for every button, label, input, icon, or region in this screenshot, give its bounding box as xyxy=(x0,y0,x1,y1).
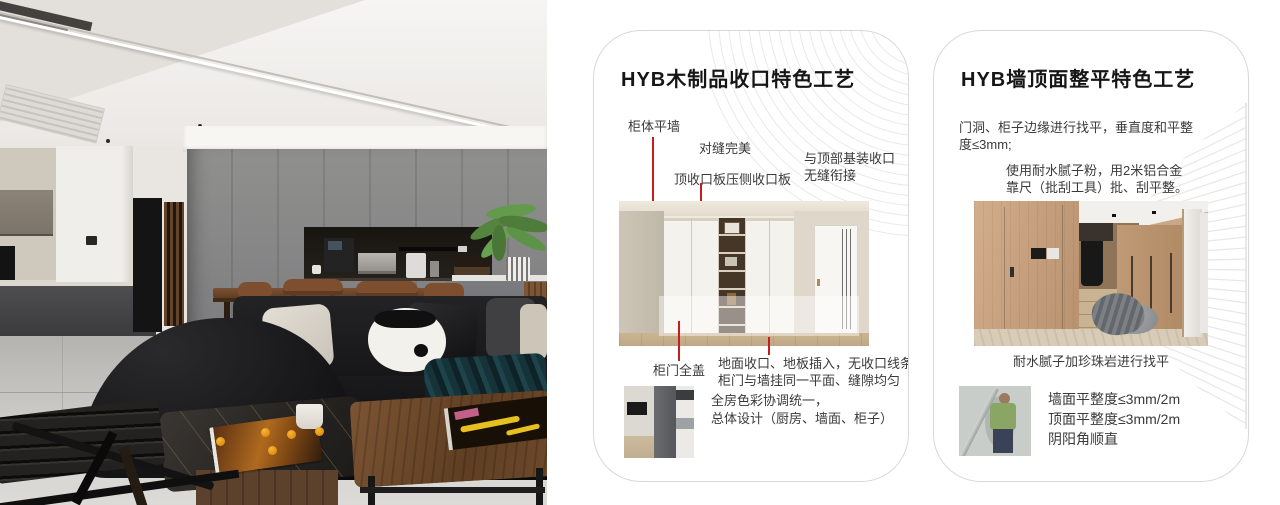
wardrobe-groove xyxy=(1170,253,1172,313)
interior-thumbnail xyxy=(624,386,694,458)
render-left-wall xyxy=(619,211,664,336)
shelf-object xyxy=(725,257,737,266)
thumb-floor xyxy=(624,436,654,458)
machine-screen xyxy=(328,241,342,250)
door-handle xyxy=(817,279,820,286)
magazine-title-script xyxy=(506,423,540,436)
callout-perfect-seam: 对缝完美 xyxy=(699,140,751,157)
hanging-clothes xyxy=(1081,241,1103,286)
spec-ceiling-flatness: 顶面平整度≤3mm/2m xyxy=(1048,409,1180,429)
espresso-machine xyxy=(406,253,426,278)
kumquat xyxy=(216,437,225,446)
paragraph-leveling-1a: 门洞、柜子边缘进行找平，垂直度和平整 xyxy=(959,119,1193,136)
pillow-beige xyxy=(520,304,547,360)
wood-slat-door xyxy=(164,202,184,326)
wardrobe-render-image xyxy=(619,201,869,346)
thumb-gray-column xyxy=(654,386,676,458)
thumb-tv xyxy=(627,402,647,415)
dining-chair xyxy=(238,282,272,296)
worker-thumbnail xyxy=(959,386,1031,456)
closet-left-wall xyxy=(974,201,1079,341)
closet-floor xyxy=(974,329,1208,346)
door-handle xyxy=(1010,267,1014,277)
kitchen-upper-cabinet xyxy=(0,190,53,236)
leader-line-floor-joint xyxy=(768,337,770,355)
hanging-rod xyxy=(399,247,457,251)
potted-plant xyxy=(468,203,547,281)
note-overall-design: 总体设计（厨房、墙面、柜子） xyxy=(711,410,893,427)
hidden-door-seam xyxy=(1004,207,1005,339)
living-room-photo xyxy=(0,0,547,505)
grinder xyxy=(430,261,439,277)
socket xyxy=(458,246,467,252)
spec-corners: 阴阳角顺直 xyxy=(1048,429,1118,449)
leaf xyxy=(492,225,506,261)
control-panel-module xyxy=(1047,248,1059,259)
paragraph-putty-2a: 使用耐水腻子粉，用2米铝合金 xyxy=(1006,162,1182,179)
callout-floor-1: 地面收口、地板插入，无收口线条 xyxy=(718,355,909,372)
kumquat xyxy=(287,430,296,439)
render-glow xyxy=(659,296,859,336)
shelf-object xyxy=(724,222,740,234)
dark-doorway xyxy=(133,198,162,332)
bright-room-glimpse xyxy=(1200,213,1208,333)
worker-shirt xyxy=(990,403,1016,430)
thumb-kitchen-counter xyxy=(676,418,694,429)
kumquat xyxy=(315,427,324,436)
callout-floor-2: 柜门与墙挂同一平面、缝隙均匀 xyxy=(718,372,900,389)
panda-black-band xyxy=(374,310,436,328)
ceiling-spot xyxy=(1152,211,1156,214)
wall-pillar xyxy=(56,146,133,282)
wood-table-bar xyxy=(360,487,545,493)
kumquat xyxy=(261,428,270,437)
callout-top-joint-1: 与顶部基装收口 xyxy=(804,150,895,167)
thumb-kitchen-cabinet xyxy=(676,390,694,400)
downlight-dot xyxy=(106,139,110,143)
panda-black-spot xyxy=(414,344,428,357)
paragraph-leveling-1b: 度≤3mm; xyxy=(959,136,1012,153)
hidden-door-seam xyxy=(1062,205,1063,339)
photo-caption: 耐水腻子加珍珠岩进行找平 xyxy=(974,353,1208,370)
page: HYB木制品收口特色工艺 柜体平墙 对缝完美 顶收口板压侧收口板 与顶部基装收口… xyxy=(0,0,1280,505)
card-title: HYB木制品收口特色工艺 xyxy=(621,63,855,92)
magazine-pink-mark xyxy=(454,408,479,420)
callout-top-joint-2: 无缝衔接 xyxy=(804,167,856,184)
paragraph-putty-2b: 靠尺（批刮工具）批、刮平整。 xyxy=(1006,179,1188,196)
recess-top-shelf xyxy=(1079,223,1113,241)
worker-pants xyxy=(993,429,1013,453)
control-panel xyxy=(1031,248,1046,259)
card-wood-closing-craft: HYB木制品收口特色工艺 柜体平墙 对缝完美 顶收口板压侧收口板 与顶部基装收口… xyxy=(593,30,909,482)
kumquat xyxy=(268,446,277,455)
dining-chair xyxy=(283,279,343,295)
coffee-niche xyxy=(304,227,492,281)
leader-line-door-cover xyxy=(678,321,680,361)
coffee-cup xyxy=(296,404,323,429)
mug xyxy=(312,265,321,274)
plant-pot xyxy=(506,257,530,281)
note-color-unity: 全房色彩协调统一， xyxy=(711,392,828,409)
callout-top-board: 顶收口板压侧收口板 xyxy=(674,171,791,188)
closet-photo xyxy=(974,201,1208,346)
dining-chair xyxy=(356,281,418,297)
callout-cabinet-flush-wall: 柜体平墙 xyxy=(628,118,680,135)
wardrobe-groove xyxy=(1150,256,1152,314)
cup-rack xyxy=(358,253,396,274)
light-switch xyxy=(86,236,97,245)
card-wall-leveling-craft: HYB墙顶面整平特色工艺 门洞、柜子边缘进行找平，垂直度和平整 度≤3mm; 使… xyxy=(933,30,1249,482)
open-white-door xyxy=(1182,209,1202,337)
ceiling-spot xyxy=(1112,214,1116,217)
card-title: HYB墙顶面整平特色工艺 xyxy=(961,63,1195,92)
callout-door-cover: 柜门全盖 xyxy=(653,362,705,379)
spec-wall-flatness: 墙面平整度≤3mm/2m xyxy=(1048,389,1180,409)
